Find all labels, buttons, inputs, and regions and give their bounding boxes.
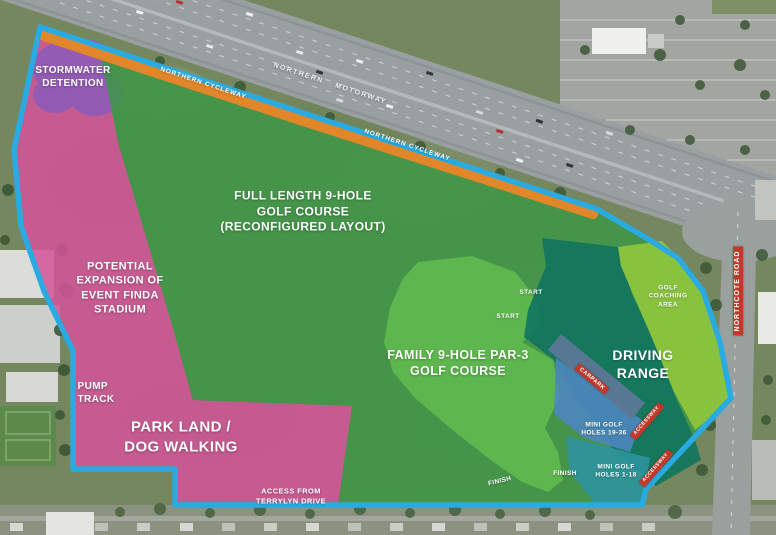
zone-label-full-length-course: FULL LENGTH 9-HOLE GOLF COURSE (RECONFIG… bbox=[220, 189, 385, 236]
zone-label-driving-range: DRIVING RANGE bbox=[612, 346, 673, 382]
masterplan-map: STORMWATER DETENTION NORTHERN CYCLEWAY N… bbox=[0, 0, 776, 535]
zone-label-minigolf-1-18: MINI GOLF HOLES 1-18 bbox=[595, 464, 636, 481]
zone-label-stormwater-detention: STORMWATER DETENTION bbox=[35, 64, 110, 90]
start-label-2: START bbox=[496, 313, 519, 321]
zone-label-park-land: PARK LAND / DOG WALKING bbox=[124, 418, 238, 457]
zone-label-minigolf-19-36: MINI GOLF HOLES 19-36 bbox=[581, 422, 626, 439]
zone-label-pump-track: PUMP TRACK bbox=[78, 380, 115, 406]
start-label-1: START bbox=[519, 289, 542, 297]
finish-label-2: FINISH bbox=[553, 470, 577, 478]
zone-label-family-par3-course: FAMILY 9-HOLE PAR-3 GOLF COURSE bbox=[387, 347, 528, 380]
zone-label-stadium-expansion: POTENTIAL EXPANSION OF EVENT FINDA STADI… bbox=[76, 259, 163, 316]
access-label-terrylyn-drive: ACCESS FROM TERRYLYN DRIVE bbox=[256, 486, 326, 506]
northcote-road-label: NORTHCOTE ROAD bbox=[733, 247, 743, 336]
zone-label-coaching-area: GOLF COACHING AREA bbox=[649, 284, 688, 309]
